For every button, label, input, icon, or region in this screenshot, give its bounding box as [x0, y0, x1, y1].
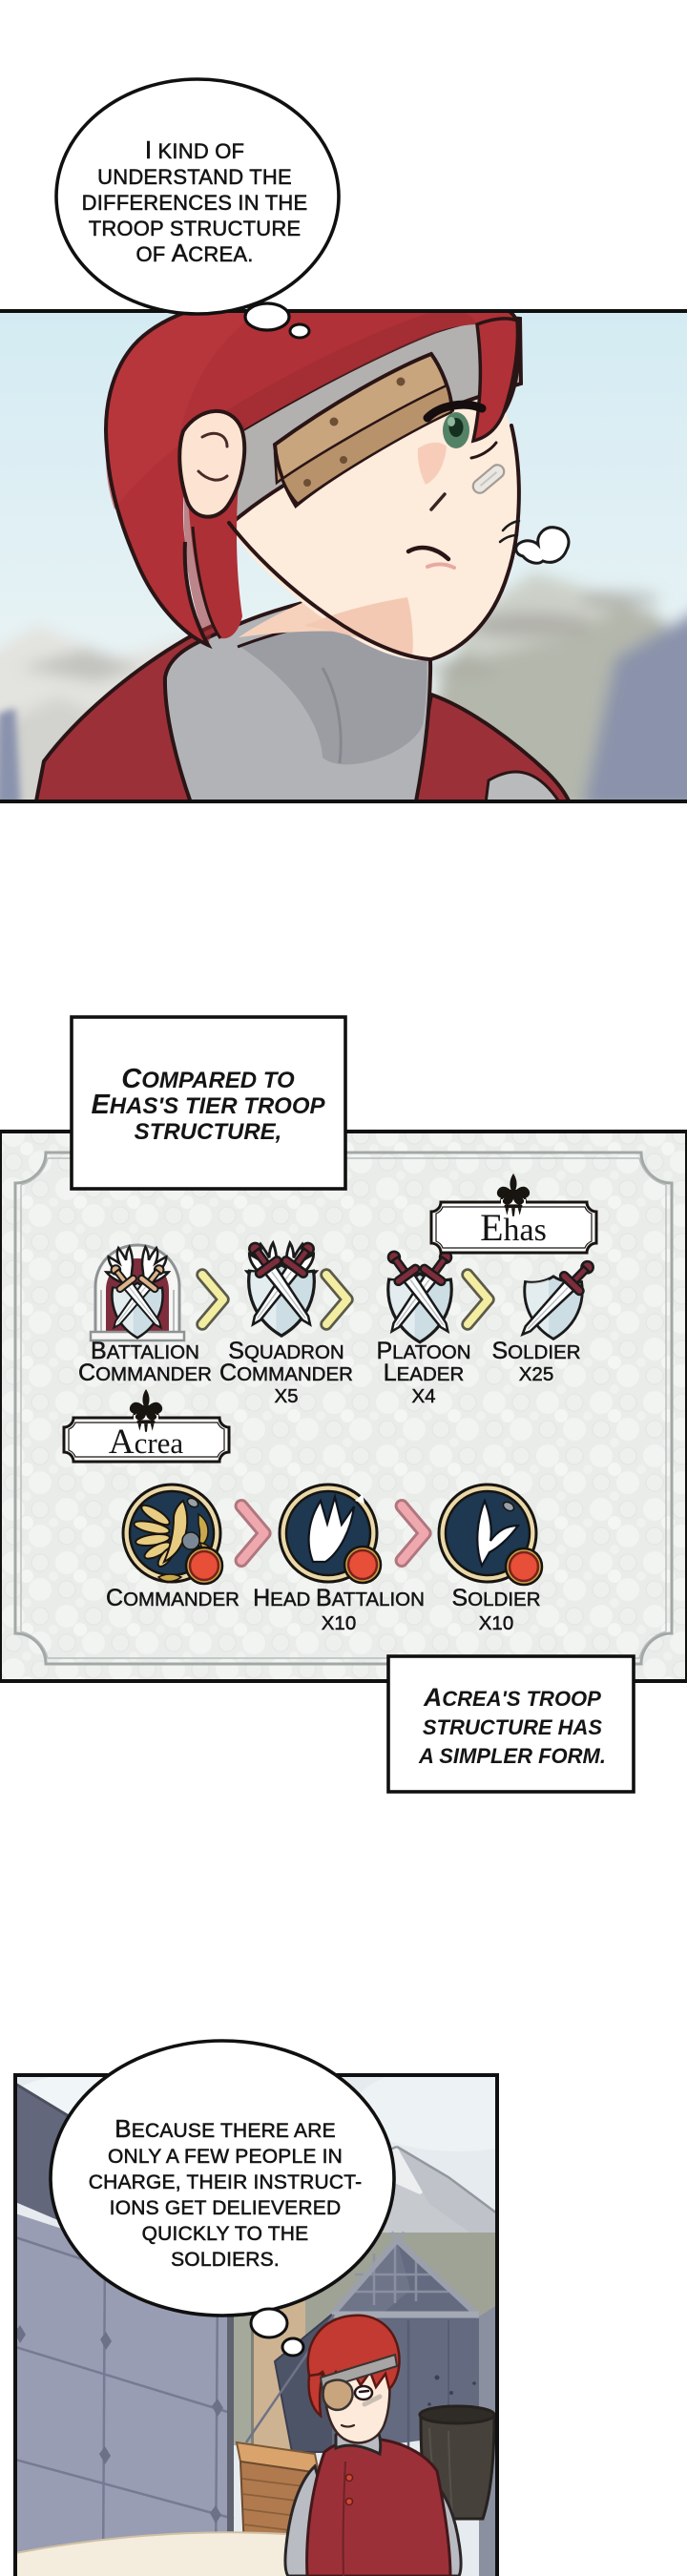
svg-text:IONS GET DELIEVERED: IONS GET DELIEVERED: [110, 2197, 342, 2219]
svg-text:SQUADRON: SQUADRON: [228, 1338, 343, 1364]
svg-text:X25: X25: [519, 1363, 553, 1385]
svg-text:SOLDIERS.: SOLDIERS.: [171, 2249, 280, 2271]
svg-text:COMPARED TO: COMPARED TO: [121, 1064, 295, 1094]
svg-text:ACREA'S TROOP: ACREA'S TROOP: [423, 1683, 601, 1712]
svg-text:X10: X10: [322, 1612, 356, 1634]
svg-text:OF ACREA.: OF ACREA.: [135, 239, 253, 267]
svg-text:COMMANDER: COMMANDER: [78, 1360, 212, 1386]
svg-text:STRUCTURE,: STRUCTURE,: [135, 1119, 282, 1145]
svg-text:Ehas: Ehas: [480, 1206, 547, 1249]
svg-text:X5: X5: [274, 1385, 298, 1407]
svg-text:X10: X10: [479, 1612, 513, 1634]
svg-text:Acrea: Acrea: [109, 1423, 184, 1462]
svg-text:HEAD BATTALION: HEAD BATTALION: [253, 1585, 425, 1611]
svg-text:X4: X4: [411, 1385, 435, 1407]
svg-text:TROOP STRUCTURE: TROOP STRUCTURE: [89, 217, 302, 240]
svg-text:CHARGE, THEIR INSTRUCT-: CHARGE, THEIR INSTRUCT-: [89, 2171, 363, 2193]
svg-text:A SIMPLER FORM.: A SIMPLER FORM.: [418, 1744, 606, 1768]
svg-text:DIFFERENCES IN THE: DIFFERENCES IN THE: [82, 191, 308, 215]
svg-text:EHAS'S TIER TROOP: EHAS'S TIER TROOP: [91, 1090, 325, 1120]
svg-text:UNDERSTAND THE: UNDERSTAND THE: [97, 165, 292, 189]
svg-text:COMMANDER: COMMANDER: [106, 1585, 239, 1611]
svg-text:SOLDIER: SOLDIER: [491, 1338, 580, 1364]
svg-text:QUICKLY TO THE: QUICKLY TO THE: [142, 2223, 309, 2245]
svg-text:SOLDIER: SOLDIER: [451, 1585, 540, 1611]
svg-text:COMMANDER: COMMANDER: [219, 1360, 353, 1386]
svg-text:STRUCTURE HAS: STRUCTURE HAS: [423, 1715, 603, 1739]
svg-text:ONLY A FEW PEOPLE IN: ONLY A FEW PEOPLE IN: [108, 2146, 343, 2168]
svg-text:LEADER: LEADER: [384, 1360, 465, 1386]
svg-text:BATTALION: BATTALION: [91, 1338, 199, 1364]
svg-text:I KIND OF: I KIND OF: [145, 135, 244, 164]
